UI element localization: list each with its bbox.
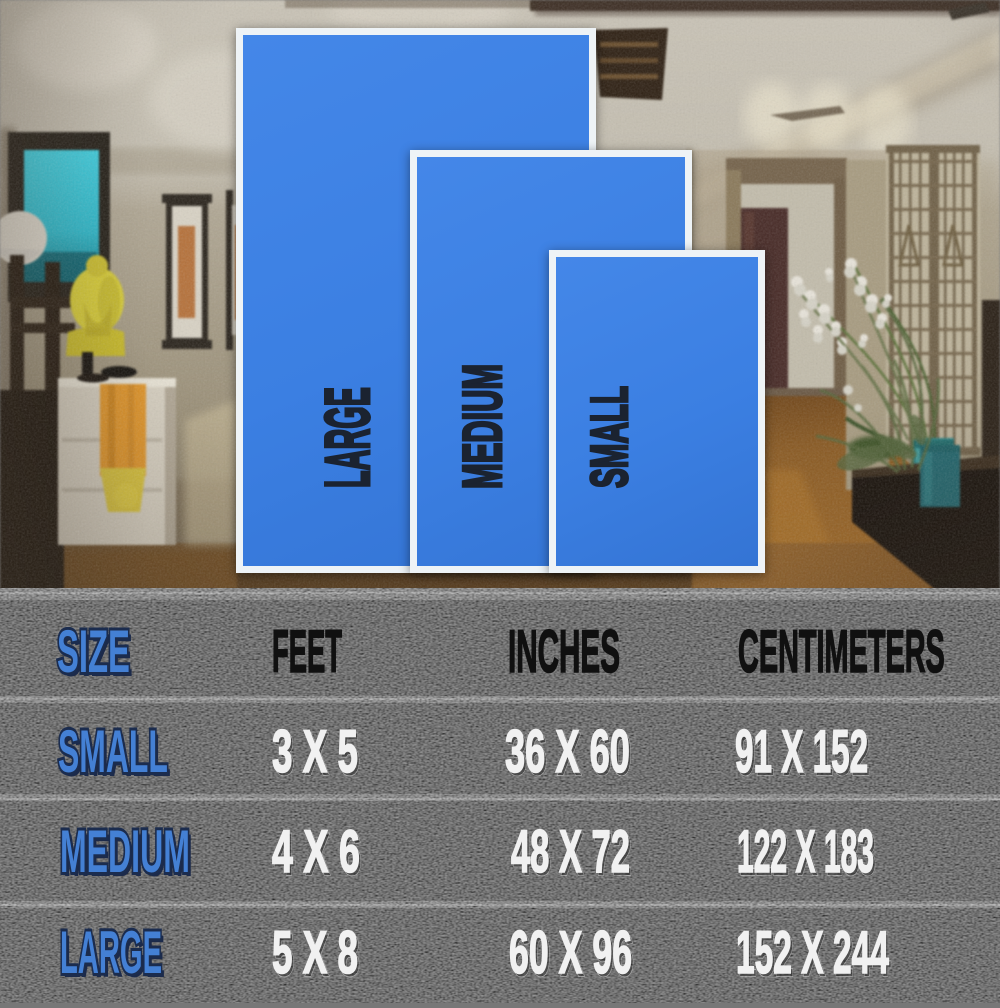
svg-text:3 X 5: 3 X 5	[272, 718, 358, 785]
svg-text:MEDIUM: MEDIUM	[453, 364, 513, 489]
svg-text:SMALL: SMALL	[58, 720, 168, 786]
svg-text:4 X 6: 4 X 6	[272, 818, 360, 885]
svg-text:36 X 60: 36 X 60	[505, 718, 630, 786]
svg-text:LARGE: LARGE	[314, 387, 383, 488]
svg-text:INCHES: INCHES	[508, 619, 620, 686]
svg-text:91 X 152: 91 X 152	[735, 719, 868, 786]
svg-text:SMALL: SMALL	[580, 386, 638, 488]
svg-text:FEET: FEET	[272, 618, 342, 685]
svg-text:152 X 244: 152 X 244	[736, 920, 889, 987]
svg-text:60 X 96: 60 X 96	[509, 920, 632, 987]
svg-text:48 X 72: 48 X 72	[511, 819, 630, 885]
svg-text:SIZE: SIZE	[57, 619, 130, 686]
svg-text:5 X 8: 5 X 8	[272, 919, 358, 986]
svg-text:CENTIMETERS: CENTIMETERS	[738, 617, 945, 685]
svg-text:122 X 183: 122 X 183	[737, 819, 874, 886]
svg-text:LARGE: LARGE	[60, 918, 162, 985]
svg-text:MEDIUM: MEDIUM	[60, 818, 190, 885]
